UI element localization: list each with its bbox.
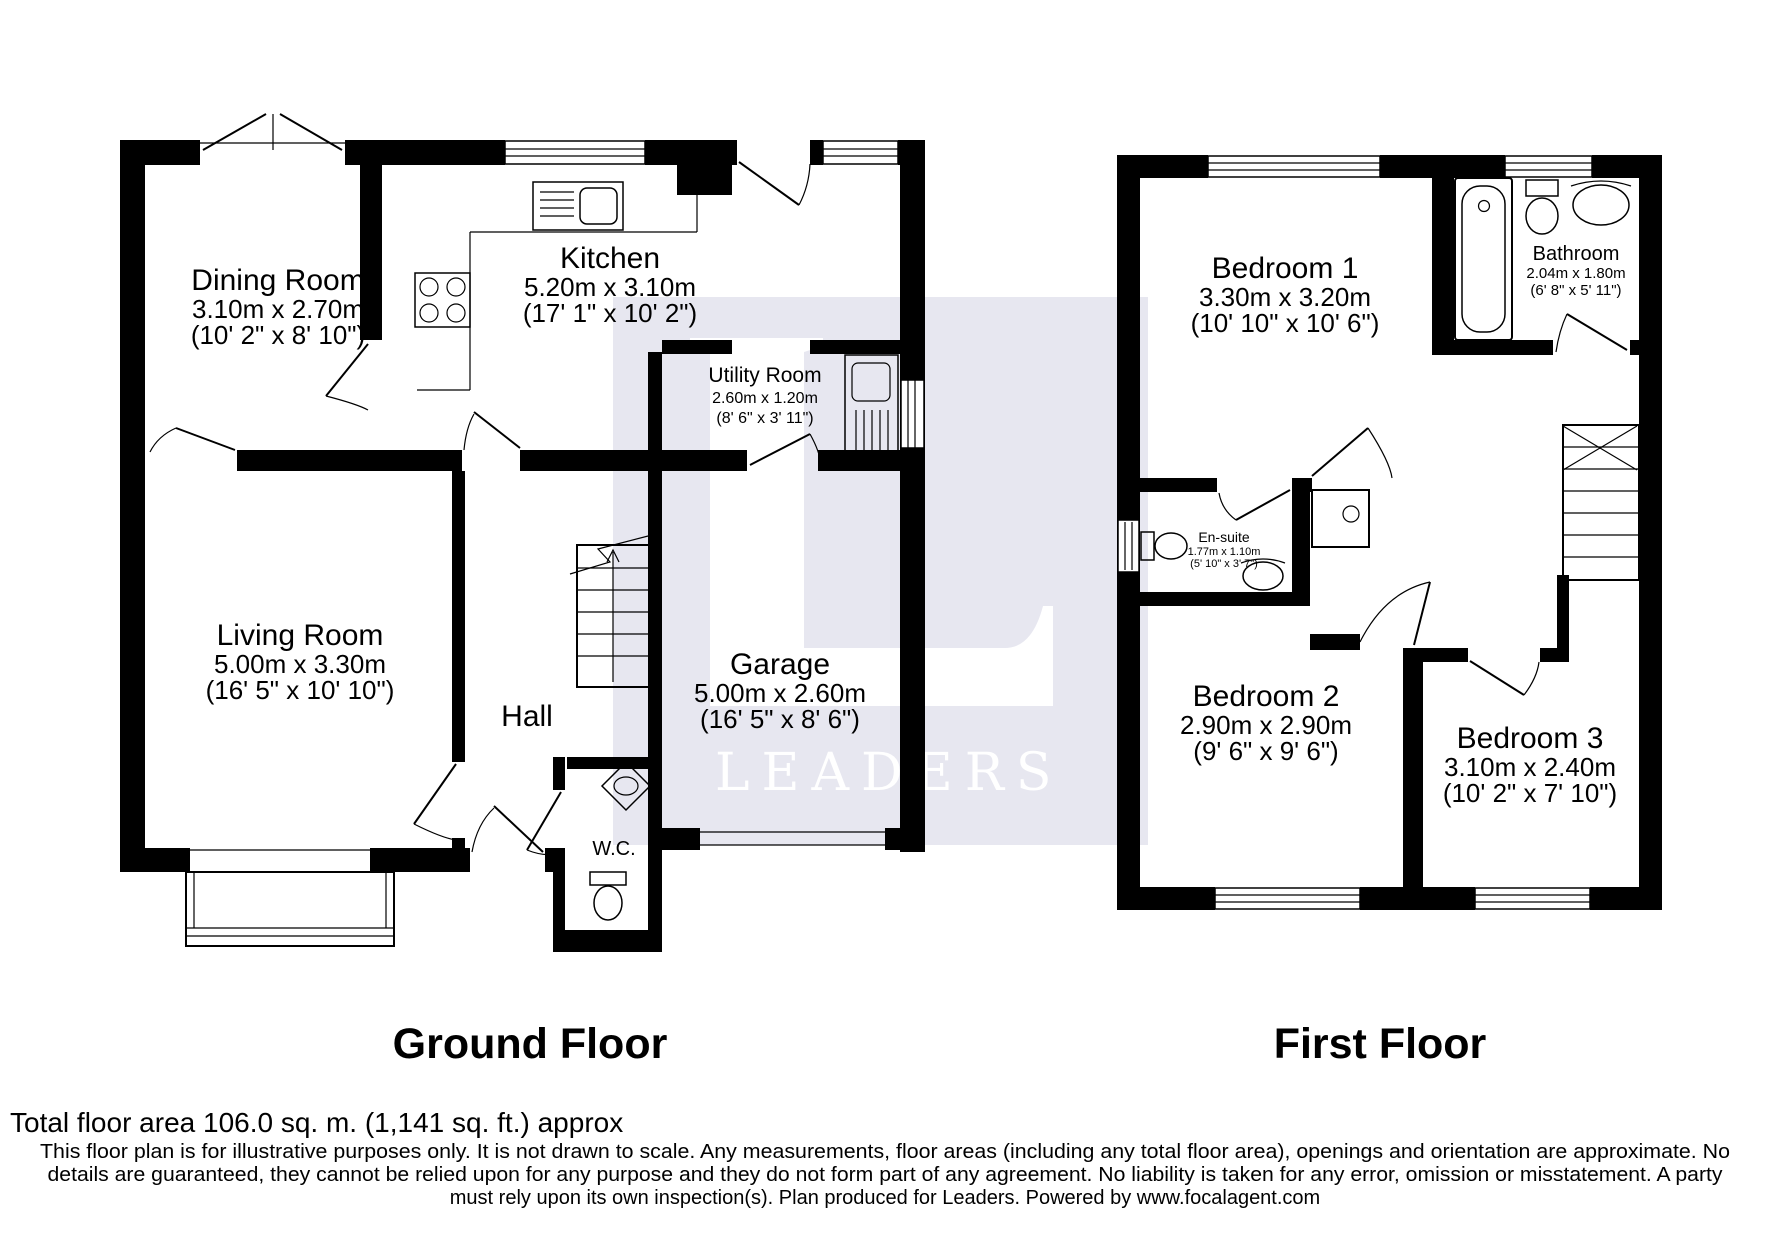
- living-bay-window: [186, 850, 394, 946]
- disclaimer-line-2: details are guaranteed, they cannot be r…: [48, 1164, 1723, 1186]
- bedroom1-imperial: (10' 10" x 10' 6"): [1191, 308, 1380, 338]
- kitchen-side-window: [823, 141, 898, 164]
- bedroom3-imperial: (10' 2" x 7' 10"): [1443, 778, 1617, 808]
- wc-toilet-icon: [590, 872, 626, 920]
- footer: Total floor area 106.0 sq. m. (1,141 sq.…: [10, 1107, 1730, 1209]
- hall-kitchen-door-swing: [464, 412, 520, 450]
- kitchen-imperial: (17' 1" x 10' 2"): [523, 298, 697, 328]
- watermark-brand: LEADERS: [715, 743, 1063, 803]
- living-room-imperial: (16' 5" x 10' 10"): [206, 675, 395, 705]
- shower-icon: [1312, 490, 1369, 547]
- ground-floor-title: Ground Floor: [393, 1020, 668, 1068]
- room-labels-first: Bedroom 1 3.30m x 3.20m (10' 10" x 10' 6…: [1180, 243, 1626, 808]
- bathroom-toilet-icon: [1526, 180, 1558, 234]
- kitchen-sink-icon: [533, 182, 623, 230]
- ensuite-metric: 1.77m x 1.10m: [1188, 546, 1261, 558]
- bathroom-metric: 2.04m x 1.80m: [1526, 265, 1625, 282]
- bedroom2-window: [1215, 888, 1360, 909]
- dining-room-label: Dining Room: [191, 264, 364, 297]
- bathroom-imperial: (6' 8" x 5' 11"): [1530, 282, 1621, 299]
- utility-room-label: Utility Room: [708, 364, 821, 387]
- bathroom-label: Bathroom: [1533, 243, 1620, 265]
- bathroom-window: [1505, 156, 1592, 177]
- utility-room-imperial: (8' 6" x 3' 11"): [716, 410, 813, 427]
- ensuite-imperial: (5' 10" x 3' 7"): [1190, 558, 1258, 570]
- utility-room-metric: 2.60m x 1.20m: [712, 390, 818, 407]
- dining-living-door-swing: [150, 428, 235, 452]
- ensuite-window: [1118, 520, 1139, 572]
- bathroom-door-swing: [1556, 314, 1627, 352]
- bathroom-sink-icon: [1571, 181, 1631, 225]
- bedroom1-label: Bedroom 1: [1212, 252, 1359, 285]
- bedroom3-window: [1475, 888, 1590, 909]
- bedroom2-door-swing: [1360, 582, 1430, 645]
- bedroom3-door-swing: [1470, 661, 1539, 695]
- ensuite-label: En-suite: [1198, 529, 1250, 545]
- bedroom1-window: [1208, 156, 1380, 177]
- disclaimer-line-3: must rely upon its own inspection(s). Pl…: [450, 1187, 1320, 1209]
- kitchen-window: [505, 141, 645, 164]
- dining-room-imperial: (10' 2" x 8' 10"): [191, 320, 365, 350]
- bedroom2-label: Bedroom 2: [1193, 680, 1340, 713]
- utility-window: [901, 380, 924, 448]
- disclaimer-line-1: This floor plan is for illustrative purp…: [40, 1141, 1730, 1163]
- bedroom3-label: Bedroom 3: [1457, 722, 1604, 755]
- kitchen-label: Kitchen: [560, 242, 660, 275]
- bathtub-icon: [1455, 178, 1512, 340]
- watermark: LEADERS: [613, 297, 1148, 845]
- wc-door-swing: [527, 792, 561, 855]
- floorplan-page: LEADERS: [0, 0, 1771, 1240]
- floorplan-canvas: LEADERS: [0, 0, 1771, 1240]
- garage-label: Garage: [730, 648, 830, 681]
- back-door-swing: [739, 162, 810, 205]
- bedroom1-door-swing: [1312, 428, 1392, 478]
- wc-label: W.C.: [592, 838, 635, 860]
- hall-label: Hall: [501, 700, 553, 733]
- first-floor-plan: Bedroom 1 3.30m x 3.20m (10' 10" x 10' 6…: [1117, 155, 1662, 910]
- dining-bay-doors: [200, 114, 345, 150]
- front-door-swing: [472, 806, 543, 852]
- stairs-first-floor: [1563, 425, 1639, 580]
- total-floor-area: Total floor area 106.0 sq. m. (1,141 sq.…: [10, 1107, 623, 1138]
- dining-kitchen-door-swing: [326, 344, 368, 410]
- first-floor-title: First Floor: [1274, 1020, 1487, 1068]
- bedroom1-ensuite-door-swing: [1219, 490, 1290, 520]
- living-hall-door-swing: [414, 764, 456, 840]
- living-room-label: Living Room: [217, 619, 384, 652]
- hob-icon: [415, 273, 470, 327]
- bedroom2-imperial: (9' 6" x 9' 6"): [1193, 736, 1338, 766]
- garage-imperial: (16' 5" x 8' 6"): [700, 704, 860, 734]
